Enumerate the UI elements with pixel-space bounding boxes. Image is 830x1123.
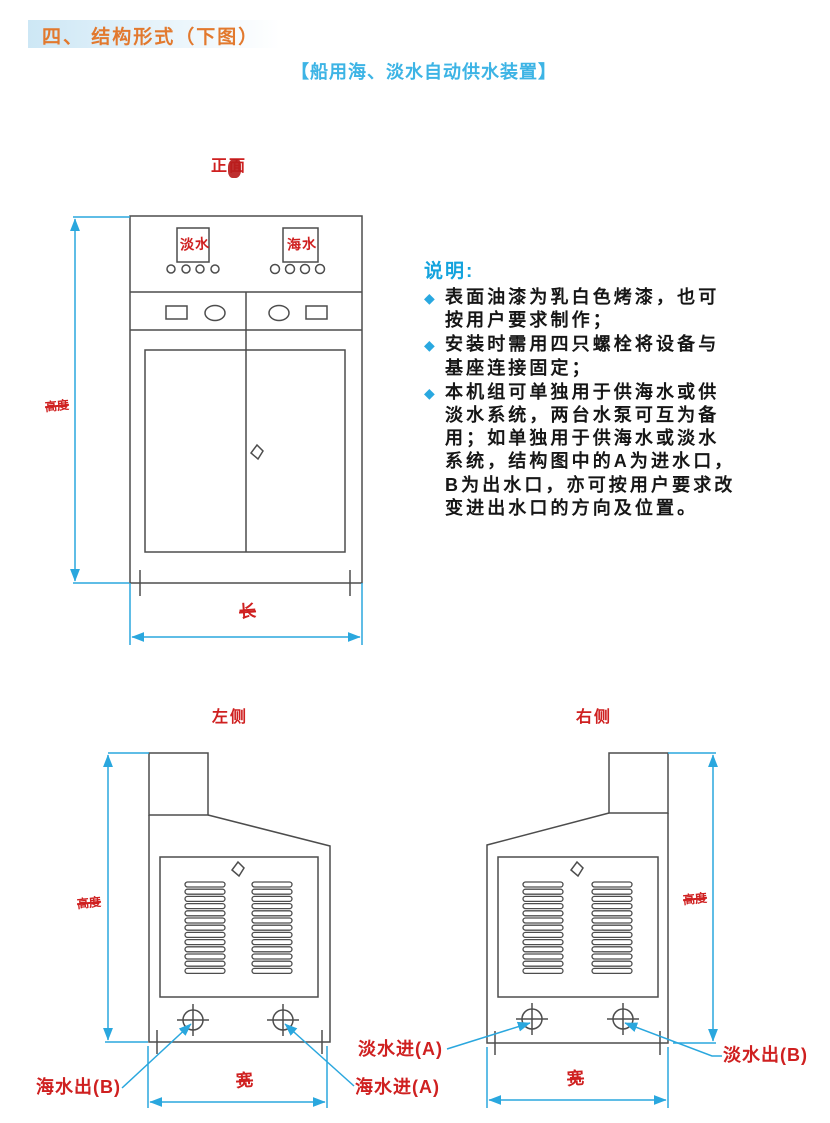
fresh-water-outlet-label: 淡水出(B) [723,1046,808,1064]
sea-out-port [177,1004,209,1036]
note-text: 本机组可单独用于供海水或供 淡水系统，两台水泵可互为备 用；如单独用于供海水或淡… [445,381,735,520]
leader-sea-in [285,1024,354,1086]
right-view-title: 右侧 [576,710,612,726]
page-subtitle: 【船用海、淡水自动供水装置】 [291,58,557,84]
notes-heading: 说明: [424,256,768,283]
front-view-outline [130,216,362,596]
right-view-louvers [523,882,632,973]
fresh-out-port [607,1003,639,1035]
indicator-lights [167,265,325,274]
right-height-dimension-label: 高度 [682,892,707,906]
note-item: ◆ 安装时需用四只螺栓将设备与 基座连接固定； [424,333,768,379]
length-text: 长 [238,602,256,620]
sea-water-outlet-label: 海水出(B) [36,1078,121,1096]
right-width-dimension-label: 宽 [567,1070,584,1087]
panel-handle [571,862,583,876]
note-item: ◆ 本机组可单独用于供海水或供 淡水系统，两台水泵可互为备 用；如单独用于供海水… [424,381,768,520]
sea-in-port [267,1004,299,1036]
width-text: 宽 [235,1071,253,1089]
left-view-louvers [185,882,292,973]
left-height-dimension-label: 高度 [76,896,101,910]
sea-water-inlet-label: 海水进(A) [355,1078,440,1096]
left-width-dimension-label: 宽 [236,1072,253,1089]
right-view-dimensions [447,753,722,1108]
fresh-water-display-label: 淡水 [180,236,211,252]
door-handle [251,445,263,459]
panel-handle [232,862,244,876]
left-view-dimensions [105,753,354,1108]
scribble-mark [228,159,241,178]
right-view-ports [516,1003,639,1035]
leader-fresh-out [625,1023,722,1056]
left-view-title: 左侧 [212,710,248,726]
note-text: 表面油漆为乳白色烤漆，也可 按用户要求制作； [445,286,719,332]
front-view-dimensions [73,217,362,645]
bullet-diamond-icon: ◆ [424,286,445,310]
notes-section: 说明: ◆ 表面油漆为乳白色烤漆，也可 按用户要求制作； ◆ 安装时需用四只螺栓… [424,256,768,521]
left-view-ports [177,1004,299,1036]
front-view-title: 正面 [211,159,247,175]
left-view-outline [149,753,330,1054]
leader-fresh-in [447,1023,530,1049]
note-item: ◆ 表面油漆为乳白色烤漆，也可 按用户要求制作； [424,286,768,332]
width-text: 宽 [566,1069,584,1087]
section-title: 四、 结构形式（下图） [42,22,259,49]
bullet-diamond-icon: ◆ [424,333,445,357]
front-height-dimension-label: 高度 [44,399,69,413]
fresh-in-port [516,1003,548,1035]
right-view-outline [487,753,668,1055]
fresh-water-inlet-label: 淡水进(A) [358,1040,443,1058]
sea-water-display-label: 海水 [287,236,318,252]
note-text: 安装时需用四只螺栓将设备与 基座连接固定； [445,333,719,379]
bullet-diamond-icon: ◆ [424,381,445,405]
technical-drawing-canvas [0,0,830,1123]
front-length-dimension-label: 长 [239,603,256,620]
